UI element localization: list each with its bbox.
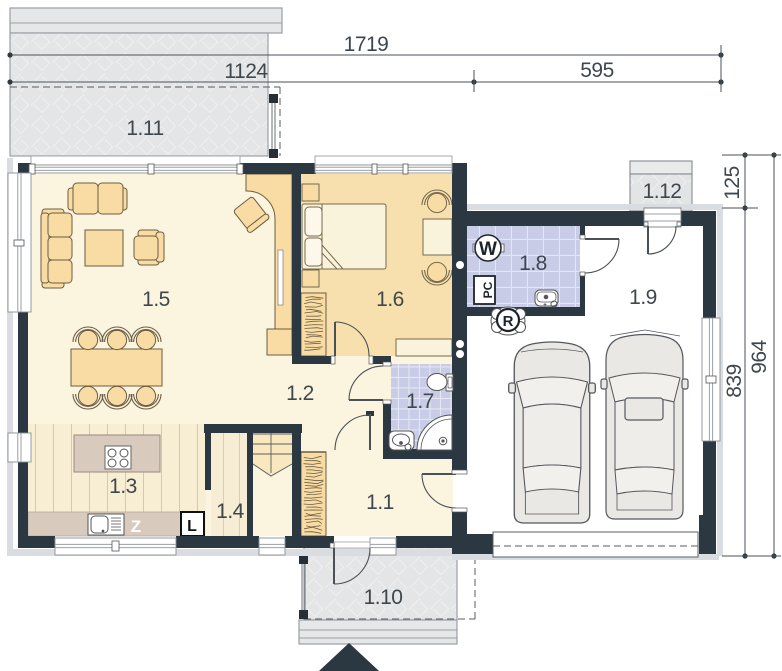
svg-text:W: W (479, 239, 497, 260)
svg-text:1719: 1719 (344, 33, 389, 56)
svg-text:1.8: 1.8 (519, 252, 547, 275)
svg-text:1.1: 1.1 (366, 491, 394, 514)
svg-text:1.5: 1.5 (142, 288, 170, 311)
svg-text:1.2: 1.2 (286, 382, 314, 405)
svg-text:1.6: 1.6 (376, 288, 404, 311)
svg-text:1.9: 1.9 (629, 286, 657, 309)
svg-text:1124: 1124 (224, 60, 268, 83)
svg-text:1.4: 1.4 (216, 500, 245, 523)
svg-text:839: 839 (723, 364, 746, 398)
svg-text:1.7: 1.7 (406, 390, 434, 413)
svg-text:L: L (187, 518, 197, 535)
svg-text:1.12: 1.12 (643, 180, 682, 203)
svg-text:1.11: 1.11 (126, 117, 163, 140)
svg-text:964: 964 (748, 339, 771, 373)
svg-text:R: R (503, 313, 514, 330)
svg-text:PC: PC (481, 281, 495, 298)
svg-text:1.3: 1.3 (109, 475, 137, 498)
svg-text:125: 125 (721, 166, 744, 200)
svg-text:595: 595 (580, 59, 614, 82)
svg-text:Z: Z (131, 517, 141, 536)
svg-text:1.10: 1.10 (364, 586, 403, 609)
